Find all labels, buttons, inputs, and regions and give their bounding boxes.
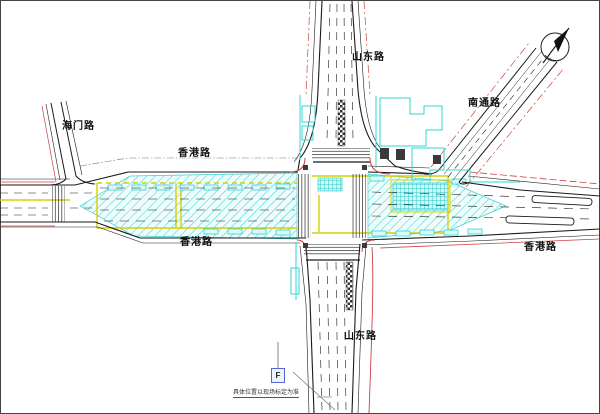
road-label-hongkong-right: 香港路	[524, 243, 557, 253]
haimen-road-edges	[46, 101, 95, 185]
road-label-haimen: 海门路	[62, 122, 95, 132]
road-label-nantong: 南通路	[468, 99, 501, 109]
road-label-shandong-top: 山东路	[352, 53, 385, 63]
road-label-hongkong-lower: 香港路	[180, 238, 213, 248]
drawing-canvas: 海门路 香港路 山东路 南通路 香港路 香港路 山东路 F 具体位置以现场标定为…	[0, 0, 600, 414]
hatch-zone-east	[318, 174, 506, 238]
annotation-note: 具体位置以现场标定为准	[233, 389, 299, 398]
road-plan-drawing	[0, 0, 600, 414]
road-label-hongkong-upper: 香港路	[178, 149, 211, 159]
road-label-shandong-bottom: 山东路	[344, 332, 377, 342]
median-checker	[338, 100, 353, 310]
annotation-leaders	[278, 342, 335, 410]
signal-symbol-box: F	[271, 368, 285, 383]
north-arrow-icon	[541, 28, 569, 63]
